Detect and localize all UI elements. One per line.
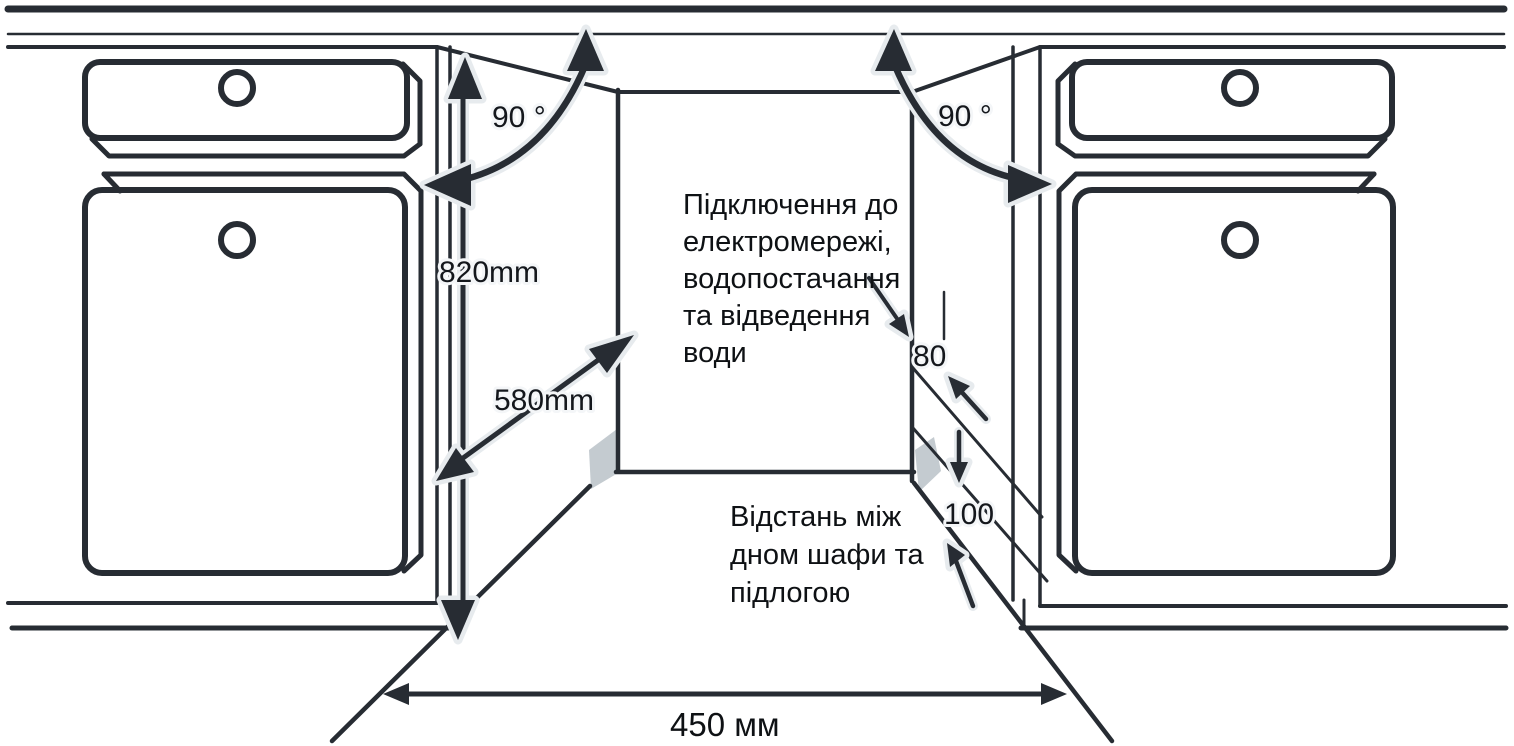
right-drawer-knob bbox=[1224, 72, 1256, 104]
niche-depth-label: 580mm bbox=[494, 384, 594, 417]
floor-gap-annotation: Відстань між дном шафи та підлогою bbox=[730, 501, 932, 609]
installation-diagram: 90 ° 90 ° 820mm 580mm 80 100 450 мм Підк… bbox=[0, 0, 1514, 746]
left-drawer-bevel-bottom bbox=[92, 139, 420, 156]
connection-line-1: Підключення до bbox=[683, 189, 898, 221]
dim-height-820 bbox=[441, 57, 482, 640]
right-door-knob bbox=[1224, 224, 1256, 256]
angle-label-left: 90 ° bbox=[492, 101, 546, 134]
left-cabinet bbox=[85, 62, 421, 573]
annotation-texts: Підключення до електромережі, водопостач… bbox=[683, 189, 932, 609]
connection-line-5: води bbox=[683, 337, 747, 369]
niche-top-diagonal-right bbox=[912, 47, 1040, 92]
niche-height-label: 820mm bbox=[439, 256, 539, 289]
dim450-right-head bbox=[1041, 683, 1067, 705]
connection-annotation: Підключення до електромережі, водопостач… bbox=[683, 189, 908, 369]
left-drawer-knob bbox=[221, 72, 253, 104]
diagram-canvas: 90 ° 90 ° 820mm 580mm 80 100 450 мм Підк… bbox=[0, 0, 1514, 746]
connection-line-4: та відведення bbox=[683, 300, 870, 332]
connection-line-3: водопостачання bbox=[683, 263, 900, 295]
connection-line-2: електромережі, bbox=[683, 226, 892, 258]
hose-gap-label: 80 bbox=[913, 340, 946, 373]
floor-line-3: підлогою bbox=[730, 577, 850, 609]
left-door-knob bbox=[221, 224, 253, 256]
niche-width-label: 450 мм bbox=[670, 706, 780, 743]
angle-label-right: 90 ° bbox=[938, 100, 992, 133]
right-cabinet bbox=[1058, 62, 1393, 573]
right-drawer-bevel-bottom bbox=[1058, 139, 1385, 156]
plinth-gap-label: 100 bbox=[944, 498, 994, 531]
floor-line-2: дном шафи та bbox=[730, 539, 925, 571]
floor-line-1: Відстань між bbox=[730, 501, 902, 533]
dim-width-450 bbox=[383, 683, 1067, 705]
niche-left-shaded-cut bbox=[589, 429, 618, 489]
gap100-up-shaft bbox=[956, 561, 973, 606]
countertop bbox=[8, 9, 1504, 47]
